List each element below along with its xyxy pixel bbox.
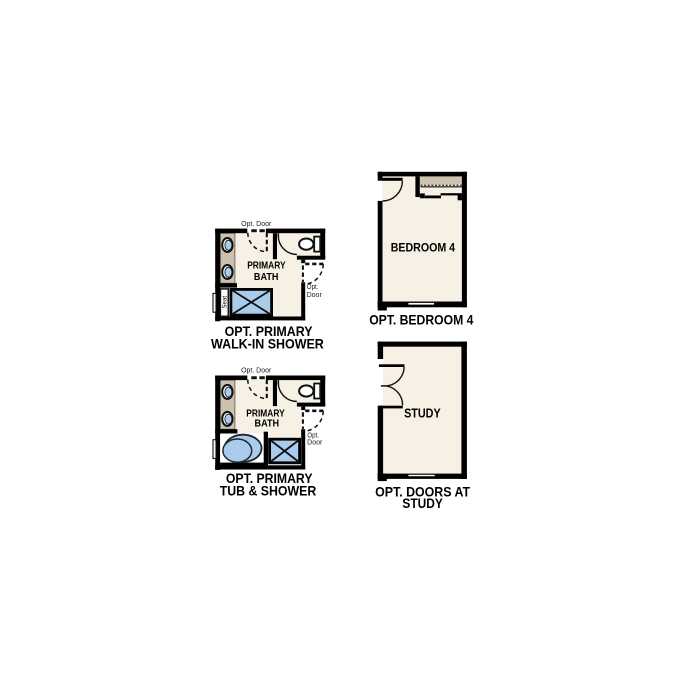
svg-text:BATH: BATH [255,418,280,429]
svg-text:Door: Door [307,292,323,299]
svg-text:Opt. Door: Opt. Door [241,368,272,375]
svg-text:Seat: Seat [221,296,228,309]
svg-text:Opt.: Opt. [307,284,319,291]
svg-text:PRIMARY: PRIMARY [247,261,286,272]
svg-text:Opt. Door: Opt. Door [241,221,272,228]
svg-text:BATH: BATH [254,272,279,283]
svg-text:OPT. BEDROOM 4: OPT. BEDROOM 4 [369,312,473,328]
svg-text:STUDY: STUDY [404,406,441,421]
svg-text:STUDY: STUDY [402,495,443,511]
svg-text:WALK-IN SHOWER: WALK-IN SHOWER [211,336,324,352]
svg-text:TUB & SHOWER: TUB & SHOWER [220,482,317,498]
svg-text:Door: Door [307,439,323,446]
svg-text:BEDROOM 4: BEDROOM 4 [391,240,456,254]
